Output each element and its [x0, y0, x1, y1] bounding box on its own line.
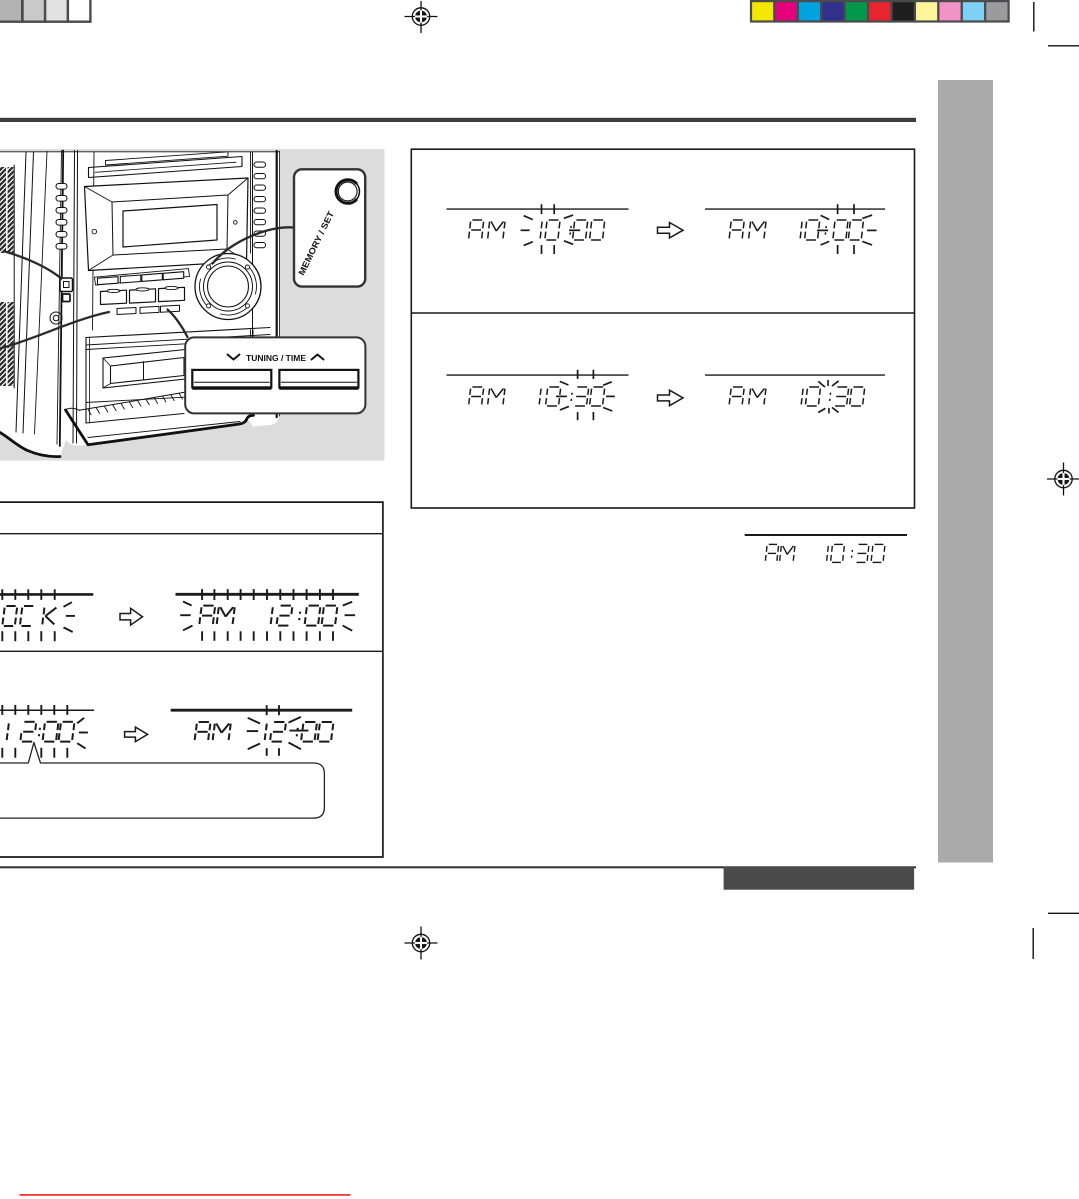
- svg-text:TUNING / TIME: TUNING / TIME: [246, 353, 306, 363]
